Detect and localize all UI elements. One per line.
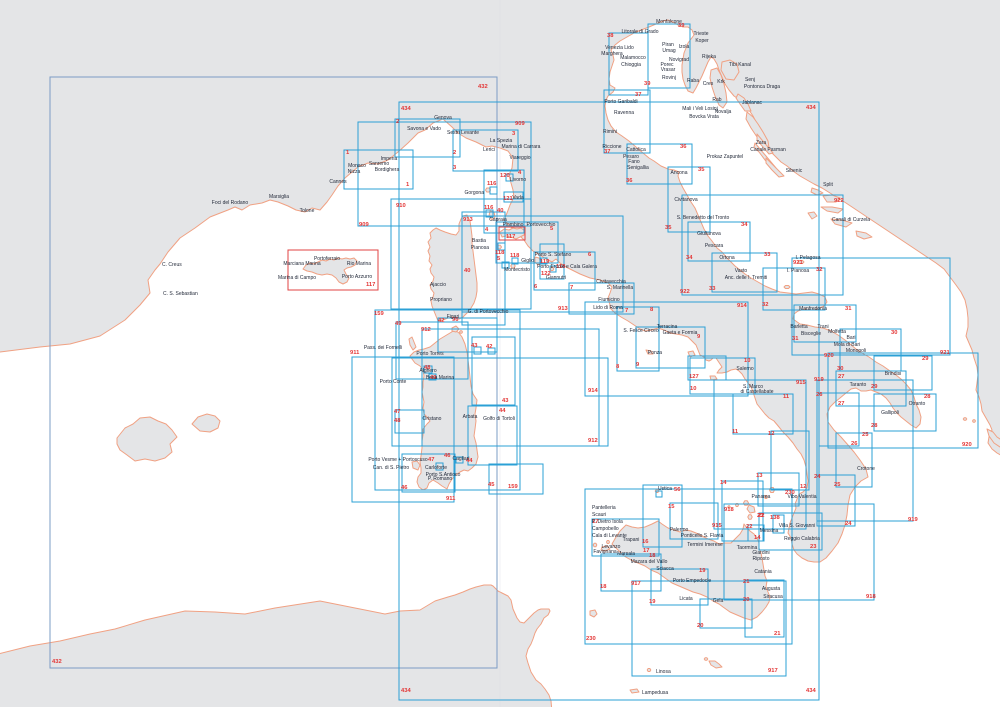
svg-text:Scauri: Scauri xyxy=(592,512,606,518)
svg-text:39: 39 xyxy=(644,81,651,87)
svg-text:Gorgona: Gorgona xyxy=(465,190,485,196)
svg-text:Porto Torres: Porto Torres xyxy=(416,351,444,357)
svg-text:138: 138 xyxy=(770,515,780,521)
svg-text:920: 920 xyxy=(962,442,972,448)
svg-text:917: 917 xyxy=(768,668,778,674)
svg-text:36: 36 xyxy=(680,144,687,150)
svg-text:Krk: Krk xyxy=(717,79,725,85)
svg-text:20: 20 xyxy=(743,597,749,603)
svg-text:Ravenna: Ravenna xyxy=(614,110,634,116)
svg-text:Canale Pasman: Canale Pasman xyxy=(750,147,786,153)
svg-text:Raba: Raba xyxy=(687,78,699,84)
svg-text:31: 31 xyxy=(845,306,852,312)
svg-text:Lido di Roma: Lido di Roma xyxy=(593,305,623,311)
svg-text:Oristano: Oristano xyxy=(423,416,442,422)
svg-text:18: 18 xyxy=(600,584,607,590)
svg-text:919: 919 xyxy=(814,377,824,383)
svg-text:2: 2 xyxy=(453,150,456,156)
svg-text:Pescara: Pescara xyxy=(705,243,724,249)
svg-text:Tibi Kanal: Tibi Kanal xyxy=(729,62,751,68)
svg-text:12: 12 xyxy=(768,431,774,437)
svg-text:26: 26 xyxy=(816,392,823,398)
svg-text:34: 34 xyxy=(741,222,748,228)
svg-text:Bordighera: Bordighera xyxy=(375,167,400,173)
svg-text:Brindisi: Brindisi xyxy=(885,371,901,377)
svg-text:21: 21 xyxy=(743,579,750,585)
svg-text:434: 434 xyxy=(401,688,411,694)
svg-text:32: 32 xyxy=(762,302,768,308)
svg-text:Giulianova: Giulianova xyxy=(697,231,721,237)
svg-text:48: 48 xyxy=(394,418,401,424)
svg-text:P. Romano: P. Romano xyxy=(428,476,453,482)
svg-text:Viareggio: Viareggio xyxy=(509,155,530,161)
svg-text:S. Marinella: S. Marinella xyxy=(607,285,634,291)
svg-text:Carloforte: Carloforte xyxy=(425,465,447,471)
svg-text:37: 37 xyxy=(635,92,641,98)
svg-text:20: 20 xyxy=(697,623,703,629)
svg-text:Anc. delle I. Tremiti: Anc. delle I. Tremiti xyxy=(725,275,768,281)
svg-text:913: 913 xyxy=(558,306,568,312)
svg-text:Trani: Trani xyxy=(817,324,828,330)
svg-text:Termini Imerese: Termini Imerese xyxy=(687,542,723,548)
svg-text:117: 117 xyxy=(366,282,375,288)
svg-text:Cagliari: Cagliari xyxy=(453,456,470,462)
svg-text:S. Benedetto del Tronto: S. Benedetto del Tronto xyxy=(677,215,730,221)
svg-text:Vada: Vada xyxy=(512,195,524,201)
svg-text:Tolone: Tolone xyxy=(300,208,315,214)
svg-text:116: 116 xyxy=(484,205,494,211)
svg-text:Vrasar: Vrasar xyxy=(661,67,676,73)
svg-text:Ajaccio: Ajaccio xyxy=(430,282,446,288)
svg-text:40: 40 xyxy=(497,208,503,214)
svg-text:Bastia: Bastia xyxy=(472,238,486,244)
svg-text:Porto Ercole e Cala Galera: Porto Ercole e Cala Galera xyxy=(537,264,597,270)
svg-text:Marina di Carrara: Marina di Carrara xyxy=(502,144,541,150)
svg-text:56: 56 xyxy=(674,487,681,493)
svg-text:46: 46 xyxy=(401,485,408,491)
svg-text:Senigallia: Senigallia xyxy=(627,165,649,171)
svg-text:118: 118 xyxy=(510,253,520,259)
svg-text:Porto Garibaldi: Porto Garibaldi xyxy=(604,99,637,105)
svg-text:Porto Conte: Porto Conte xyxy=(380,379,407,385)
svg-text:28: 28 xyxy=(871,423,878,429)
svg-text:Riposto: Riposto xyxy=(753,556,770,562)
svg-text:16: 16 xyxy=(642,539,649,545)
svg-text:Porto Empedocle: Porto Empedocle xyxy=(673,578,712,584)
svg-text:Piombino: Piombino xyxy=(503,222,524,228)
svg-text:Propriano: Propriano xyxy=(430,297,452,303)
svg-text:44: 44 xyxy=(499,408,506,414)
svg-text:Lido: Lido xyxy=(624,45,634,51)
svg-text:43: 43 xyxy=(471,343,478,349)
svg-text:118: 118 xyxy=(495,250,505,256)
svg-text:10: 10 xyxy=(690,386,696,392)
svg-text:127: 127 xyxy=(689,374,699,380)
svg-text:914: 914 xyxy=(588,388,598,394)
svg-text:Bovcka Vrata: Bovcka Vrata xyxy=(689,114,719,120)
svg-text:Fiumicino: Fiumicino xyxy=(598,297,620,303)
svg-text:Molfetta: Molfetta xyxy=(828,329,846,335)
svg-text:19: 19 xyxy=(699,568,706,574)
svg-text:922: 922 xyxy=(680,289,690,295)
svg-text:27: 27 xyxy=(838,374,844,380)
svg-text:159: 159 xyxy=(374,311,384,317)
svg-text:116: 116 xyxy=(487,181,497,187)
svg-text:Lerici: Lerici xyxy=(483,147,495,153)
svg-text:Manfredonia: Manfredonia xyxy=(799,306,827,312)
svg-text:45: 45 xyxy=(488,482,495,488)
svg-text:35: 35 xyxy=(665,225,672,231)
svg-text:Ponticello S. Flavia: Ponticello S. Flavia xyxy=(681,533,724,539)
svg-text:10: 10 xyxy=(744,358,750,364)
svg-text:30: 30 xyxy=(891,330,897,336)
svg-text:28: 28 xyxy=(924,394,931,400)
svg-text:Reggio Calabria: Reggio Calabria xyxy=(784,536,820,542)
svg-text:13: 13 xyxy=(756,473,763,479)
svg-text:909: 909 xyxy=(515,121,525,127)
svg-text:Senj: Senj xyxy=(745,77,755,83)
svg-text:Montecristo: Montecristo xyxy=(504,267,530,273)
svg-text:42: 42 xyxy=(438,318,444,324)
svg-text:120: 120 xyxy=(500,173,510,179)
svg-text:Pianosa: Pianosa xyxy=(471,245,489,251)
svg-text:909: 909 xyxy=(359,222,369,228)
svg-text:I. Pianosa: I. Pianosa xyxy=(787,268,809,274)
svg-text:G. di Portovecchio: G. di Portovecchio xyxy=(468,309,509,315)
svg-text:Rijeka: Rijeka xyxy=(702,54,716,60)
svg-text:Sciacca: Sciacca xyxy=(656,566,674,572)
svg-text:432: 432 xyxy=(52,659,62,665)
svg-text:Crotone: Crotone xyxy=(857,466,875,472)
svg-text:Monopoli: Monopoli xyxy=(846,348,866,354)
svg-text:Cattolica: Cattolica xyxy=(626,147,646,153)
svg-text:25: 25 xyxy=(834,482,841,488)
svg-text:Marsala: Marsala xyxy=(617,551,635,557)
svg-text:Bisceglie: Bisceglie xyxy=(801,331,821,337)
svg-text:25: 25 xyxy=(862,432,869,438)
svg-text:921: 921 xyxy=(940,350,950,356)
svg-text:C. Creus: C. Creus xyxy=(162,262,182,268)
svg-text:Pantelleria: Pantelleria xyxy=(592,505,616,511)
svg-text:31: 31 xyxy=(792,336,799,342)
svg-text:117: 117 xyxy=(506,234,515,240)
svg-text:11: 11 xyxy=(783,394,790,400)
svg-text:23: 23 xyxy=(810,544,817,550)
svg-text:Nizza: Nizza xyxy=(348,169,361,175)
svg-text:40: 40 xyxy=(464,268,470,274)
svg-text:Civitanova: Civitanova xyxy=(674,197,698,203)
svg-text:Marina di Campo: Marina di Campo xyxy=(278,275,316,281)
svg-text:Genova: Genova xyxy=(434,115,452,121)
svg-text:Lampedusa: Lampedusa xyxy=(642,690,668,696)
svg-text:915: 915 xyxy=(712,523,722,529)
svg-text:Mazara del Vallo: Mazara del Vallo xyxy=(631,559,668,565)
svg-text:Villa S. Giovanni: Villa S. Giovanni xyxy=(779,523,816,529)
svg-text:Zara: Zara xyxy=(756,140,767,146)
svg-text:27: 27 xyxy=(838,401,844,407)
svg-text:Rab: Rab xyxy=(712,97,721,103)
svg-text:917: 917 xyxy=(631,581,641,587)
svg-text:434: 434 xyxy=(401,106,411,112)
svg-text:Gaeta e Formia: Gaeta e Formia xyxy=(663,330,698,336)
svg-text:42: 42 xyxy=(486,344,492,350)
svg-text:Umag: Umag xyxy=(662,48,676,54)
svg-text:S. Felice Circeo: S. Felice Circeo xyxy=(623,328,659,334)
svg-text:Gallipoli: Gallipoli xyxy=(881,410,899,416)
svg-text:Siracusa: Siracusa xyxy=(763,594,783,600)
svg-text:P. Dietro Isola: P. Dietro Isola xyxy=(592,519,623,525)
svg-text:230: 230 xyxy=(586,636,596,642)
svg-text:Izola: Izola xyxy=(679,44,690,50)
svg-text:14: 14 xyxy=(720,480,727,486)
svg-text:34: 34 xyxy=(686,255,693,261)
svg-text:33: 33 xyxy=(764,252,771,258)
svg-text:Messina: Messina xyxy=(760,528,779,534)
svg-text:30: 30 xyxy=(837,366,843,372)
svg-text:24: 24 xyxy=(814,474,821,480)
svg-text:Pontonca Draga: Pontonca Draga xyxy=(744,84,780,90)
svg-text:Canali di Curzela: Canali di Curzela xyxy=(832,217,870,223)
svg-text:Bosa Marina: Bosa Marina xyxy=(426,375,454,381)
svg-text:Jablanac: Jablanac xyxy=(742,100,763,106)
svg-text:21: 21 xyxy=(774,631,781,637)
svg-text:432: 432 xyxy=(478,84,488,90)
svg-text:Ortona: Ortona xyxy=(719,255,735,261)
svg-text:Cres: Cres xyxy=(703,81,714,87)
svg-text:920: 920 xyxy=(824,353,834,359)
svg-text:47: 47 xyxy=(428,457,434,463)
svg-text:Bari: Bari xyxy=(847,335,856,341)
svg-text:Rovinj: Rovinj xyxy=(662,75,676,81)
svg-text:919: 919 xyxy=(908,517,918,523)
svg-text:434: 434 xyxy=(806,688,816,694)
svg-text:Taranto: Taranto xyxy=(850,382,867,388)
svg-text:Split: Split xyxy=(823,182,833,188)
svg-text:I. Pelagosa: I. Pelagosa xyxy=(795,255,820,261)
svg-text:Augusta: Augusta xyxy=(762,586,781,592)
svg-text:Salerno: Salerno xyxy=(736,366,753,372)
svg-text:12: 12 xyxy=(800,484,806,490)
svg-text:Sibenic: Sibenic xyxy=(786,168,803,174)
svg-text:911: 911 xyxy=(350,350,360,356)
svg-text:Prokaz Zapuntel: Prokaz Zapuntel xyxy=(707,154,743,160)
svg-text:918: 918 xyxy=(866,594,876,600)
svg-text:Favignana: Favignana xyxy=(593,549,617,555)
svg-text:922: 922 xyxy=(834,198,844,204)
svg-text:Arbata: Arbata xyxy=(463,414,478,420)
svg-text:46: 46 xyxy=(444,453,451,459)
svg-text:Pass. dei Fornelli: Pass. dei Fornelli xyxy=(364,345,402,351)
svg-text:Monfalcone: Monfalcone xyxy=(656,19,682,25)
svg-text:49: 49 xyxy=(395,321,402,327)
svg-text:24: 24 xyxy=(845,521,852,527)
svg-text:Trieste: Trieste xyxy=(693,31,708,37)
svg-text:Catania: Catania xyxy=(754,569,771,575)
svg-text:Golfo di Tortoli: Golfo di Tortoli xyxy=(483,416,515,422)
svg-text:Ponza: Ponza xyxy=(648,350,662,356)
svg-text:14: 14 xyxy=(754,535,761,541)
svg-text:Licata: Licata xyxy=(679,596,693,602)
svg-text:26: 26 xyxy=(851,441,858,447)
svg-text:36: 36 xyxy=(626,178,633,184)
svg-text:Panarea: Panarea xyxy=(752,494,771,500)
svg-text:918: 918 xyxy=(724,507,734,513)
svg-text:di Castellabate: di Castellabate xyxy=(740,389,773,395)
svg-text:Porto Azzurro: Porto Azzurro xyxy=(342,274,373,280)
svg-text:33: 33 xyxy=(709,286,716,292)
svg-text:Koper: Koper xyxy=(695,38,709,44)
svg-text:Riccione: Riccione xyxy=(602,144,621,150)
svg-text:29: 29 xyxy=(922,356,929,362)
svg-text:7: 7 xyxy=(625,308,628,314)
svg-text:Giannutri: Giannutri xyxy=(546,275,566,281)
svg-text:915: 915 xyxy=(796,380,806,386)
svg-text:47: 47 xyxy=(394,409,400,415)
svg-text:Rimini: Rimini xyxy=(603,129,617,135)
svg-text:35: 35 xyxy=(698,167,705,173)
svg-text:22: 22 xyxy=(746,524,752,530)
svg-text:C. S. Sebastian: C. S. Sebastian xyxy=(163,291,198,297)
svg-text:911: 911 xyxy=(446,496,456,502)
svg-text:Marsiglia: Marsiglia xyxy=(269,194,289,200)
svg-text:Otranto: Otranto xyxy=(909,401,926,407)
svg-text:Ancona: Ancona xyxy=(671,170,688,176)
svg-text:Chioggia: Chioggia xyxy=(621,62,641,68)
svg-text:43: 43 xyxy=(502,398,509,404)
svg-text:23: 23 xyxy=(757,513,764,519)
svg-text:159: 159 xyxy=(508,484,518,490)
svg-text:38: 38 xyxy=(607,33,614,39)
svg-text:29: 29 xyxy=(871,384,878,390)
svg-text:Porto S. Stefano: Porto S. Stefano xyxy=(535,252,572,258)
svg-text:Livorno: Livorno xyxy=(510,177,527,183)
svg-text:Cannes: Cannes xyxy=(329,179,347,185)
svg-text:Ustica: Ustica xyxy=(658,486,672,492)
svg-text:Sestri Levante: Sestri Levante xyxy=(447,130,479,136)
svg-text:912: 912 xyxy=(421,327,431,333)
svg-text:Mali i Veli Losinj: Mali i Veli Losinj xyxy=(682,106,718,112)
svg-text:15: 15 xyxy=(668,504,675,510)
svg-text:32: 32 xyxy=(816,267,822,273)
svg-text:910: 910 xyxy=(396,203,406,209)
svg-text:912: 912 xyxy=(588,438,598,444)
svg-text:19: 19 xyxy=(649,599,656,605)
svg-text:Malamocco: Malamocco xyxy=(620,55,646,61)
svg-text:Savona e Vado: Savona e Vado xyxy=(407,126,441,132)
svg-text:11: 11 xyxy=(732,429,739,435)
svg-text:Litorale di Grado: Litorale di Grado xyxy=(622,29,659,35)
svg-text:Campobello: Campobello xyxy=(592,526,619,532)
svg-text:Vibo Valentia: Vibo Valentia xyxy=(787,494,816,500)
svg-text:Marciana Marina: Marciana Marina xyxy=(283,261,320,267)
svg-text:Barletta: Barletta xyxy=(790,324,807,330)
svg-text:914: 914 xyxy=(737,303,747,309)
svg-text:Foci del Rodano: Foci del Rodano xyxy=(212,200,249,206)
svg-text:Linosa: Linosa xyxy=(656,669,671,675)
svg-text:Alghero: Alghero xyxy=(419,368,436,374)
svg-text:Portovecchio: Portovecchio xyxy=(527,222,556,228)
svg-text:Vasto: Vasto xyxy=(735,268,748,274)
svg-text:2: 2 xyxy=(396,119,399,125)
svg-text:Cala di Levante: Cala di Levante xyxy=(592,533,627,539)
svg-text:Can. di S. Pietro: Can. di S. Pietro xyxy=(373,465,410,471)
svg-text:Gela: Gela xyxy=(713,598,724,604)
svg-text:434: 434 xyxy=(806,105,816,111)
svg-text:7: 7 xyxy=(570,285,573,291)
svg-text:Porto Vesme + Portoscuso: Porto Vesme + Portoscuso xyxy=(368,457,428,463)
svg-text:Rio Marina: Rio Marina xyxy=(347,261,371,267)
svg-text:913: 913 xyxy=(463,217,473,223)
svg-text:Giglio: Giglio xyxy=(521,258,534,264)
svg-text:Figari: Figari xyxy=(447,314,460,320)
